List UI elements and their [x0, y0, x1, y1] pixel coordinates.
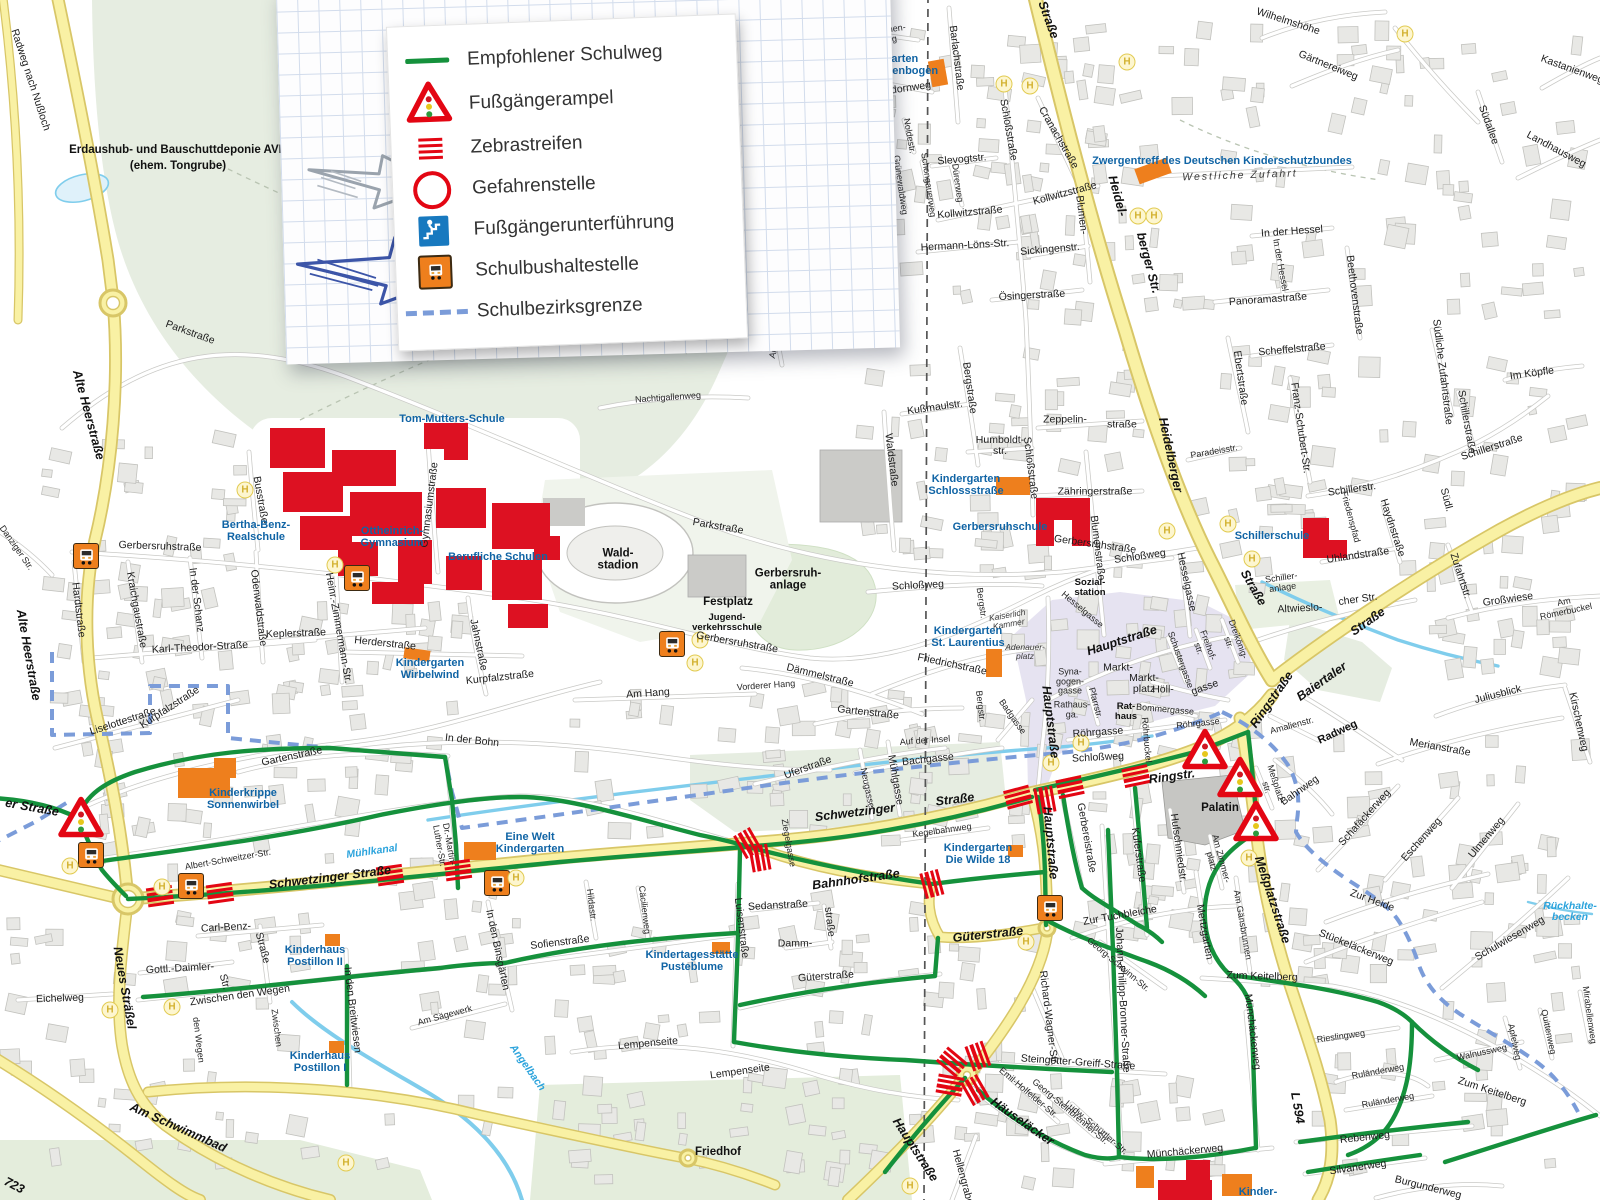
- route-line-icon: [400, 57, 454, 64]
- school-bus-stop-icon: [408, 254, 463, 290]
- legend-item-label: Schulbezirksgrenze: [476, 294, 643, 322]
- pedestrian-signal-icon: [401, 80, 457, 129]
- legend-item-label: Fußgängerunterführung: [473, 210, 674, 240]
- school-route-map[interactable]: HHHHHHHHHHHHHHHHHHHHHHHH Radweg nach Nuß…: [0, 0, 1600, 1200]
- danger-spot-icon: [404, 170, 459, 210]
- legend-item-label: Schulbushaltestelle: [475, 253, 639, 281]
- pedestrian-underpass-icon: [406, 215, 461, 247]
- zebra-crossing-icon: [403, 135, 458, 163]
- legend-item-label: Gefahrenstelle: [472, 172, 596, 199]
- map-legend: Empfohlener Schulweg FußgängerampelZebra…: [386, 13, 748, 351]
- legend-item-label: Zebrastreifen: [470, 132, 583, 158]
- district-boundary-icon: [410, 309, 464, 316]
- legend-item-label: Fußgängerampel: [468, 87, 613, 115]
- legend-item-label: Empfohlener Schulweg: [467, 41, 663, 70]
